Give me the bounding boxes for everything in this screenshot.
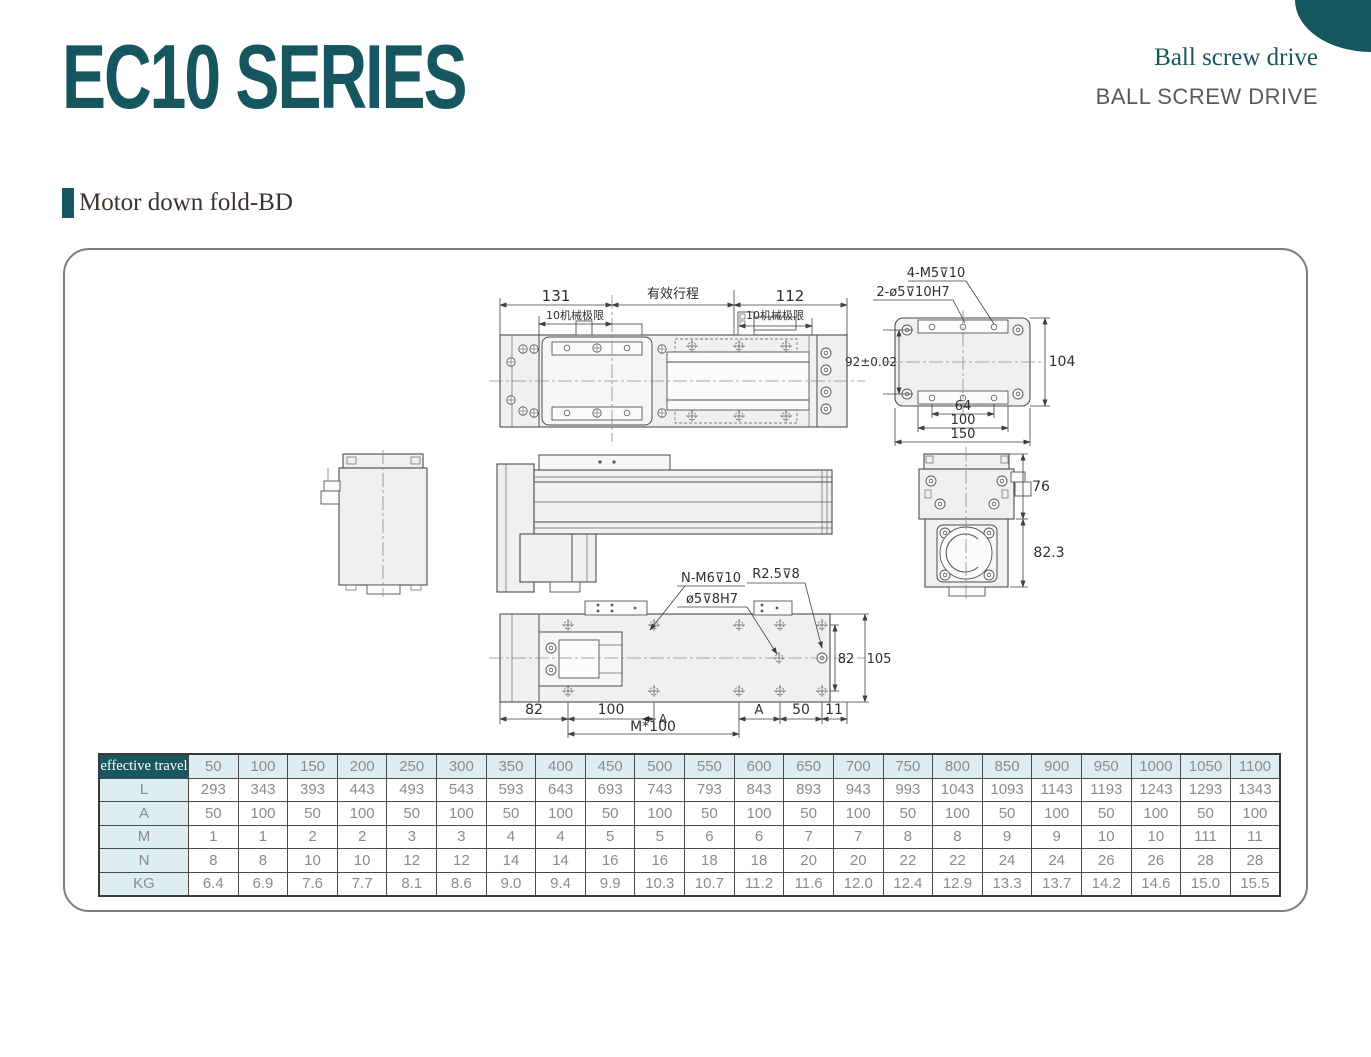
dim-label: 82 [838, 652, 855, 667]
series-title: EC10 SERIES [62, 24, 466, 129]
value-cell: 8 [883, 825, 933, 849]
travel-column-header: 300 [437, 754, 487, 778]
value-cell: 20 [833, 849, 883, 873]
value-cell: 393 [288, 778, 338, 802]
travel-column-header: 250 [387, 754, 437, 778]
travel-column-header: 950 [1081, 754, 1131, 778]
value-cell: 1043 [933, 778, 983, 802]
dim-label: 104 [1049, 354, 1076, 370]
value-cell: 7.6 [288, 872, 338, 896]
value-cell: 843 [734, 778, 784, 802]
travel-column-header: 650 [784, 754, 834, 778]
value-cell: 24 [982, 849, 1032, 873]
value-cell: 8 [933, 825, 983, 849]
value-cell: 3 [387, 825, 437, 849]
travel-column-header: 750 [883, 754, 933, 778]
value-cell: 1243 [1131, 778, 1181, 802]
travel-column-header: 550 [685, 754, 735, 778]
dim-label: 100 [951, 413, 976, 428]
row-label: A [99, 802, 189, 826]
value-cell: 593 [486, 778, 536, 802]
row-label: L [99, 778, 189, 802]
dim-label: 64 [955, 399, 972, 414]
dim-label: 50 [792, 702, 810, 718]
value-cell: 893 [784, 778, 834, 802]
value-cell: 14 [486, 849, 536, 873]
value-cell: 100 [1131, 802, 1181, 826]
dim-label: 76 [1032, 479, 1050, 495]
value-cell: 14.6 [1131, 872, 1181, 896]
travel-column-header: 450 [585, 754, 635, 778]
value-cell: 7.7 [337, 872, 387, 896]
row-label: KG [99, 872, 189, 896]
value-cell: 8 [238, 849, 288, 873]
value-cell: 2 [288, 825, 338, 849]
value-cell: 16 [635, 849, 685, 873]
value-cell: 1 [238, 825, 288, 849]
value-cell: 100 [437, 802, 487, 826]
drive-type-subtitle: Ball screw drive [1154, 44, 1318, 72]
value-cell: 1143 [1032, 778, 1082, 802]
travel-column-header: 800 [933, 754, 983, 778]
value-cell: 6 [685, 825, 735, 849]
value-cell: 5 [635, 825, 685, 849]
dim-label: ø5⊽8H7 [686, 592, 738, 607]
dim-label: 112 [776, 287, 805, 305]
dim-label: N-M6⊽10 [681, 571, 741, 586]
value-cell: 1 [189, 825, 239, 849]
value-cell: 11.2 [734, 872, 784, 896]
value-cell: 50 [883, 802, 933, 826]
drive-type-subtitle-caps: BALL SCREW DRIVE [1096, 84, 1318, 110]
value-cell: 100 [833, 802, 883, 826]
value-cell: 50 [784, 802, 834, 826]
value-cell: 24 [1032, 849, 1082, 873]
value-cell: 14 [536, 849, 586, 873]
value-cell: 100 [1230, 802, 1280, 826]
travel-column-header: 900 [1032, 754, 1082, 778]
value-cell: 12.4 [883, 872, 933, 896]
value-cell: 50 [585, 802, 635, 826]
value-cell: 15.0 [1181, 872, 1231, 896]
dim-label: 150 [951, 427, 976, 442]
table-row: M112233445566778899101011111 [99, 825, 1280, 849]
value-cell: 293 [189, 778, 239, 802]
value-cell: 1343 [1230, 778, 1280, 802]
table-header-row: effective travel501001502002503003504004… [99, 754, 1280, 778]
dim-label: 92±0.02 [845, 355, 897, 369]
value-cell: 14.2 [1081, 872, 1131, 896]
dim-label: 2-ø5⊽10H7 [876, 285, 949, 300]
dim-label: 10机械极限 [546, 308, 604, 322]
value-cell: 22 [933, 849, 983, 873]
value-cell: 50 [189, 802, 239, 826]
travel-column-header: 350 [486, 754, 536, 778]
value-cell: 6 [734, 825, 784, 849]
value-cell: 100 [1032, 802, 1082, 826]
dim-label: 有效行程 [647, 287, 699, 302]
value-cell: 50 [982, 802, 1032, 826]
value-cell: 12.0 [833, 872, 883, 896]
value-cell: 12 [387, 849, 437, 873]
travel-column-header: 700 [833, 754, 883, 778]
value-cell: 111 [1181, 825, 1231, 849]
dim-label: 131 [542, 287, 571, 305]
travel-column-header: 50 [189, 754, 239, 778]
value-cell: 7 [833, 825, 883, 849]
dim-label: 10机械极限 [746, 308, 804, 322]
value-cell: 1193 [1081, 778, 1131, 802]
dim-label: R2.5⊽8 [752, 567, 800, 582]
value-cell: 743 [635, 778, 685, 802]
value-cell: 11.6 [784, 872, 834, 896]
travel-column-header: 1100 [1230, 754, 1280, 778]
travel-column-header: 200 [337, 754, 387, 778]
value-cell: 28 [1230, 849, 1280, 873]
front-view [321, 450, 427, 597]
value-cell: 8 [189, 849, 239, 873]
travel-column-header: 1050 [1181, 754, 1231, 778]
travel-column-header: 400 [536, 754, 586, 778]
table-row: A501005010050100501005010050100501005010… [99, 802, 1280, 826]
value-cell: 1093 [982, 778, 1032, 802]
value-cell: 10.7 [685, 872, 735, 896]
travel-column-header: 500 [635, 754, 685, 778]
section-title: Motor down fold-BD [79, 189, 293, 217]
section-marker [62, 188, 74, 218]
value-cell: 8.6 [437, 872, 487, 896]
spec-table: effective travel501001502002503003504004… [98, 753, 1281, 897]
value-cell: 493 [387, 778, 437, 802]
value-cell: 10.3 [635, 872, 685, 896]
value-cell: 26 [1081, 849, 1131, 873]
travel-column-header: 100 [238, 754, 288, 778]
value-cell: 2 [337, 825, 387, 849]
bottom-view [489, 583, 869, 738]
value-cell: 12 [437, 849, 487, 873]
value-cell: 9.0 [486, 872, 536, 896]
dim-label: 82.3 [1033, 545, 1064, 561]
value-cell: 18 [734, 849, 784, 873]
dim-label: M*100 [630, 719, 676, 735]
travel-column-header: 1000 [1131, 754, 1181, 778]
value-cell: 4 [486, 825, 536, 849]
value-cell: 10 [337, 849, 387, 873]
value-cell: 943 [833, 778, 883, 802]
value-cell: 7 [784, 825, 834, 849]
value-cell: 4 [536, 825, 586, 849]
value-cell: 16 [585, 849, 635, 873]
dim-label: A [755, 703, 764, 718]
value-cell: 343 [238, 778, 288, 802]
value-cell: 15.5 [1230, 872, 1280, 896]
value-cell: 28 [1181, 849, 1231, 873]
value-cell: 50 [387, 802, 437, 826]
value-cell: 26 [1131, 849, 1181, 873]
end-view [919, 447, 1031, 602]
value-cell: 6.4 [189, 872, 239, 896]
value-cell: 10 [288, 849, 338, 873]
value-cell: 9 [1032, 825, 1082, 849]
value-cell: 100 [635, 802, 685, 826]
dim-label: 82 [525, 702, 543, 718]
value-cell: 18 [685, 849, 735, 873]
value-cell: 993 [883, 778, 933, 802]
value-cell: 12.9 [933, 872, 983, 896]
value-cell: 9.9 [585, 872, 635, 896]
value-cell: 543 [437, 778, 487, 802]
dim-label: 4-M5⊽10 [907, 266, 966, 281]
value-cell: 443 [337, 778, 387, 802]
value-cell: 5 [585, 825, 635, 849]
technical-drawing: 131有效行程11210机械极限10机械极限4-M5⊽102-ø5⊽10H792… [65, 250, 1306, 750]
value-cell: 100 [536, 802, 586, 826]
value-cell: 3 [437, 825, 487, 849]
travel-column-header: 150 [288, 754, 338, 778]
value-cell: 100 [238, 802, 288, 826]
travel-column-header: 850 [982, 754, 1032, 778]
value-cell: 6.9 [238, 872, 288, 896]
value-cell: 50 [288, 802, 338, 826]
table-row: KG6.46.97.67.78.18.69.09.49.910.310.711.… [99, 872, 1280, 896]
value-cell: 10 [1081, 825, 1131, 849]
dim-label: 105 [867, 652, 892, 667]
value-cell: 20 [784, 849, 834, 873]
spec-table-wrap: effective travel501001502002503003504004… [98, 753, 1281, 897]
value-cell: 50 [685, 802, 735, 826]
dim-label: 11 [825, 702, 843, 718]
row-label: N [99, 849, 189, 873]
value-cell: 100 [337, 802, 387, 826]
value-cell: 1293 [1181, 778, 1231, 802]
value-cell: 9 [982, 825, 1032, 849]
drawing-frame: 131有效行程11210机械极限10机械极限4-M5⊽102-ø5⊽10H792… [63, 248, 1308, 912]
value-cell: 13.3 [982, 872, 1032, 896]
table-row: L293343393443493543593643693743793843893… [99, 778, 1280, 802]
value-cell: 22 [883, 849, 933, 873]
travel-column-header: 600 [734, 754, 784, 778]
dim-label: 100 [598, 702, 625, 718]
value-cell: 10 [1131, 825, 1181, 849]
value-cell: 13.7 [1032, 872, 1082, 896]
value-cell: 50 [1081, 802, 1131, 826]
effective-travel-header: effective travel [99, 754, 189, 778]
value-cell: 643 [536, 778, 586, 802]
value-cell: 50 [486, 802, 536, 826]
value-cell: 11 [1230, 825, 1280, 849]
value-cell: 693 [585, 778, 635, 802]
section-heading: Motor down fold-BD [62, 188, 293, 218]
value-cell: 793 [685, 778, 735, 802]
value-cell: 100 [734, 802, 784, 826]
table-row: N881010121214141616181820202222242426262… [99, 849, 1280, 873]
row-label: M [99, 825, 189, 849]
value-cell: 100 [933, 802, 983, 826]
datasheet-page: EC10 SERIES Ball screw drive BALL SCREW … [0, 0, 1371, 1057]
value-cell: 50 [1181, 802, 1231, 826]
value-cell: 9.4 [536, 872, 586, 896]
value-cell: 8.1 [387, 872, 437, 896]
